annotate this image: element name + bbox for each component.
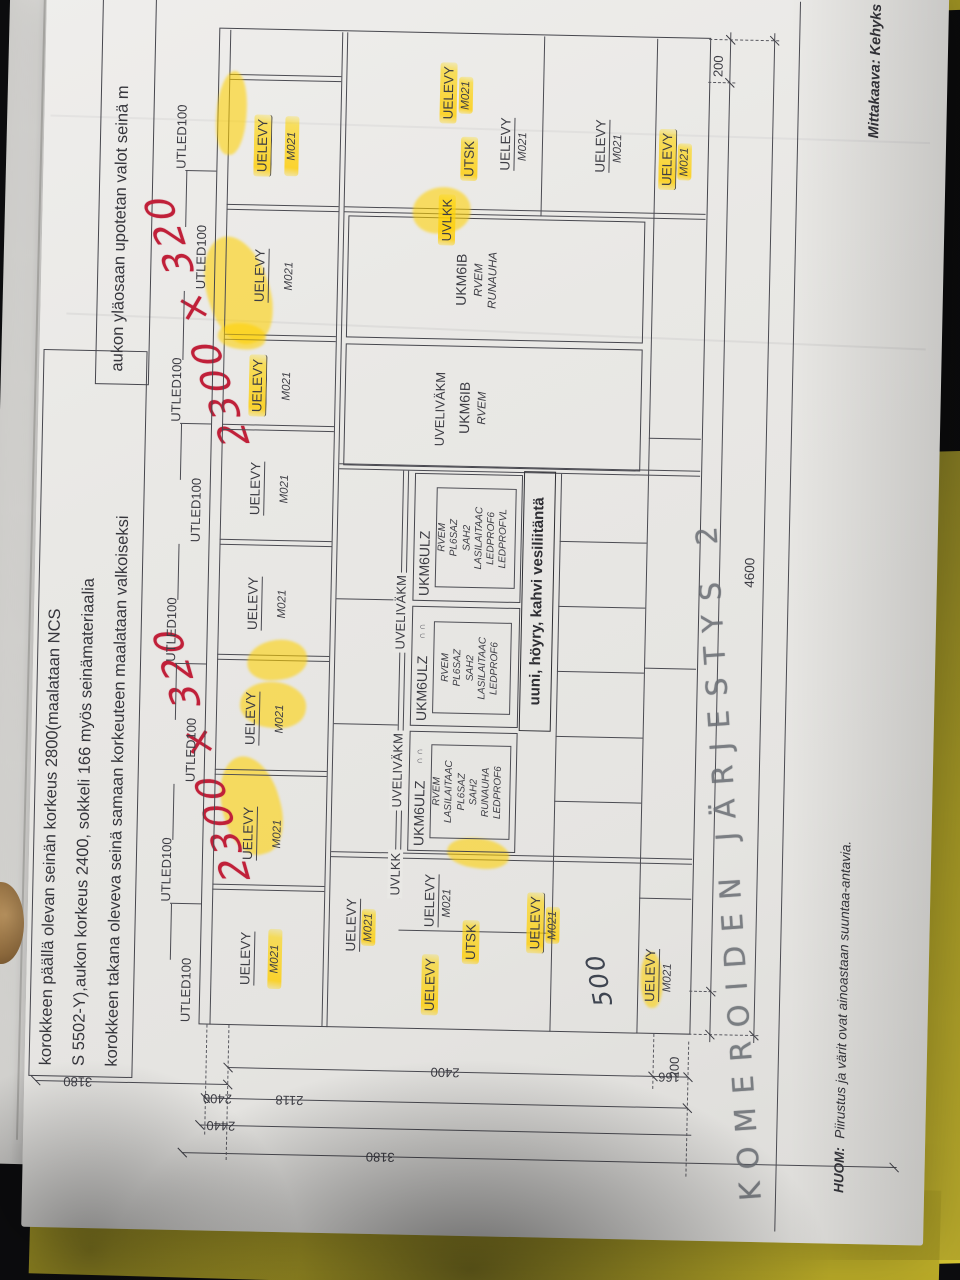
appliance-note-text: uuni, höyry, kahvi vesiliitäntä xyxy=(526,497,547,705)
uvelivakm-label: UVELIVÄKM xyxy=(392,572,409,653)
camera-shadow xyxy=(0,1060,300,1280)
panel-code: M021 xyxy=(267,929,282,989)
panel-label: UELEVY xyxy=(659,133,675,187)
dimension-value: 200 xyxy=(710,55,725,77)
photo-of-drawing: korokkeen päällä olevan seinän korkeus 2… xyxy=(0,0,960,1280)
leader-line xyxy=(177,544,179,600)
uvlkk-label: UVLKK xyxy=(438,195,456,246)
cabinet-content-box: RVEM PL6SAZ SAH2 LASILAITAAC LEDPROF6 LE… xyxy=(435,487,517,589)
ukm6ulz-label: UKM6ULZ xyxy=(413,655,430,721)
panel-code: M021 xyxy=(459,77,474,114)
leader-line xyxy=(172,784,174,840)
lights-note-text: aukon yläosaan upotetan valot seinä m xyxy=(101,0,143,372)
component-label: LEDPROF6 xyxy=(492,747,506,839)
panel-code: M021 xyxy=(361,909,376,946)
panel-code: M021 xyxy=(661,963,674,992)
dimension-total-line xyxy=(753,33,775,1043)
panel-label: UELEVY xyxy=(244,558,261,648)
component-label: RVEM xyxy=(476,368,490,448)
spec-note-box: korokkeen päällä olevan seinän korkeus 2… xyxy=(28,349,147,1078)
ukm6ulz-cabinet-box: UKM6ULZ ∩ ∩ RVEM LASILAITAAC PL6SAZ SAH2… xyxy=(407,731,517,853)
utsk-label: UTSK xyxy=(462,920,480,964)
lights-note-box: aukon yläosaan upotetan valot seinä m xyxy=(95,0,158,385)
panel-code: M021 xyxy=(677,143,692,180)
leader-line xyxy=(180,424,182,480)
utled100-label: UTLED100 xyxy=(183,718,199,783)
ukm6ulz-label: UKM6ULZ xyxy=(410,780,427,846)
ukm6ib-cabinet-box xyxy=(343,343,642,471)
panel-code: M021 xyxy=(273,693,286,745)
utled100-label: UTLED100 xyxy=(168,357,184,422)
ukm6ulz-label: UKM6ULZ xyxy=(415,531,432,597)
utled100-label: UTLED100 xyxy=(178,958,194,1023)
utled100-label: UTLED100 xyxy=(158,837,174,902)
panel-label: UELEVY xyxy=(343,898,359,952)
panel-label: UELEVY xyxy=(237,913,254,1003)
panel-label: UELEVY xyxy=(249,340,266,430)
utled100-label: UTLED100 xyxy=(163,597,179,662)
component-label: LEDPROFVL xyxy=(497,490,511,588)
panel-label: UELEVY xyxy=(242,673,259,763)
panel-label: UELEVY xyxy=(642,948,658,1002)
panel-label: UELEVY xyxy=(592,119,608,173)
utsk-label: UTSK xyxy=(460,137,478,181)
utled100-label: UTLED100 xyxy=(173,104,189,169)
panel-code: M021 xyxy=(280,360,293,412)
panel-code: M021 xyxy=(517,132,530,161)
appliance-note-box: uuni, höyry, kahvi vesiliitäntä xyxy=(519,471,556,732)
ukm6ib-label: UKM6IB xyxy=(456,368,474,448)
component-label: RVEM xyxy=(472,240,486,320)
ukm6ib-label: UKM6IB xyxy=(452,240,470,320)
hook-symbols: ∩ ∩ xyxy=(414,748,424,764)
panel-code: M021 xyxy=(283,250,296,302)
leader-line xyxy=(170,904,172,960)
panel-label: UELEVY xyxy=(422,874,438,928)
ukm6ulz-cabinet-box: UKM6ULZ ∩ ∩ RVEM PL6SAZ SAH2 LASILAITAAC… xyxy=(410,606,520,728)
panel-label: UELEVY xyxy=(251,230,268,320)
dimension-value: 4600 xyxy=(742,558,758,588)
uvelivakm-label: UVELIVÄKM xyxy=(389,730,406,811)
leader-line xyxy=(185,170,216,172)
leader-line xyxy=(180,423,211,425)
panel-label: UELEVY xyxy=(439,62,457,124)
leader-line xyxy=(170,903,201,905)
panel-code: M021 xyxy=(278,463,291,515)
ukm6ulz-cabinet-box: UKM6ULZ RVEM PL6SAZ SAH2 LASILAITAAC LED… xyxy=(412,473,523,603)
uvlkk-label: UVLKK xyxy=(387,850,403,899)
panel-code: M021 xyxy=(441,889,454,918)
component-label: RUNAUHA xyxy=(486,240,500,320)
component-label: LEDPROF6 xyxy=(488,623,502,713)
utled100-label: UTLED100 xyxy=(188,478,204,543)
panel-label: UELEVY xyxy=(254,100,271,190)
extension-line xyxy=(709,39,779,41)
panel-label: UELEVY xyxy=(240,788,257,878)
utled100-label: UTLED100 xyxy=(193,225,209,290)
panel-label: UELEVY xyxy=(527,896,543,950)
panel-code: M021 xyxy=(276,578,289,630)
panel-label: UELEVY xyxy=(421,954,439,1016)
panel-code: M021 xyxy=(612,134,625,163)
cabinet-content-box: RVEM PL6SAZ SAH2 LASILAITAAC LEDPROF6 xyxy=(432,621,512,715)
panel-label: UELEVY xyxy=(497,117,513,171)
panel-code: M021 xyxy=(284,116,299,176)
panel-label: UELEVY xyxy=(247,443,264,533)
cabinet-content-box: RVEM LASILAITAAC PL6SAZ SAH2 RUNAUHA LED… xyxy=(429,744,511,840)
panel-code: M021 xyxy=(271,808,284,860)
hook-symbols: ∩ ∩ xyxy=(417,623,427,639)
